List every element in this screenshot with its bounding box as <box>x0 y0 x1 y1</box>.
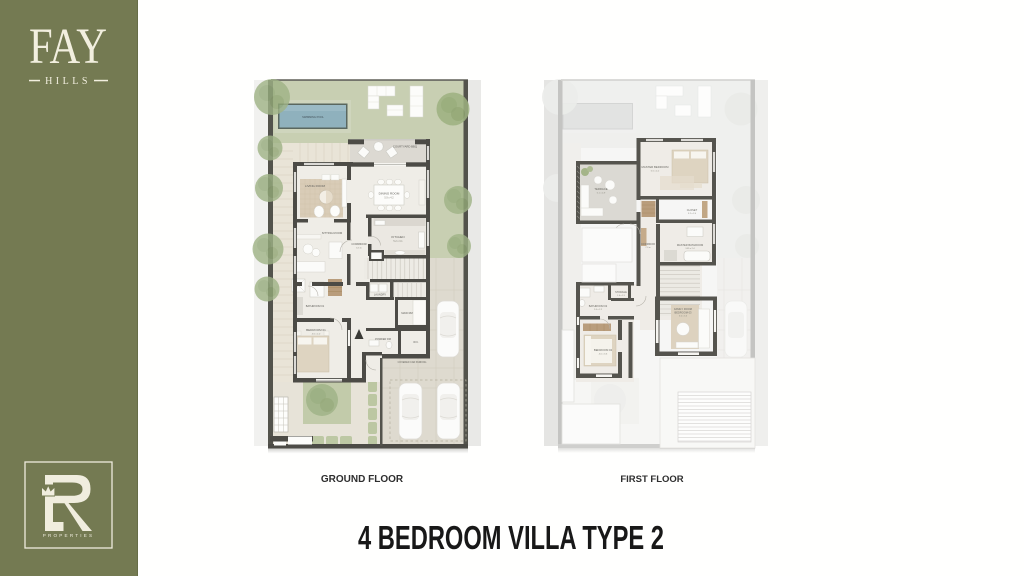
svg-text:4 BEDROOM VILLA TYPE 2: 4 BEDROOM VILLA TYPE 2 <box>358 520 664 557</box>
svg-text:SWIMMING POOL: SWIMMING POOL <box>302 115 324 119</box>
svg-text:BATHROOM 01: BATHROOM 01 <box>306 304 325 308</box>
svg-text:SITTING ROOM: SITTING ROOM <box>322 231 343 235</box>
svg-text:LAUNDRY: LAUNDRY <box>374 293 387 297</box>
svg-text:DINING ROOM: DINING ROOM <box>379 192 400 196</box>
svg-text:3.6 x 3.3: 3.6 x 3.3 <box>679 316 688 318</box>
svg-text:COURTYARD BBQ: COURTYARD BBQ <box>393 145 418 149</box>
svg-text:COVERED CAR PARKING: COVERED CAR PARKING <box>398 361 427 364</box>
svg-text:HILLS: HILLS <box>45 76 91 87</box>
svg-text:CLOSET: CLOSET <box>687 208 698 212</box>
svg-text:4.0 x 3.6: 4.0 x 3.6 <box>599 353 608 355</box>
svg-text:2.6 x 2.2: 2.6 x 2.2 <box>594 309 603 311</box>
svg-text:5.1 x 4.9: 5.1 x 4.9 <box>597 192 606 194</box>
svg-text:LIVING ROOM: LIVING ROOM <box>305 184 326 188</box>
svg-text:PROPERTIES: PROPERTIES <box>43 533 95 538</box>
svg-text:MASTER BEDROOM: MASTER BEDROOM <box>642 165 670 169</box>
svg-text:FAMILY ROOM: FAMILY ROOM <box>674 307 692 311</box>
svg-text:TERRACE: TERRACE <box>594 187 607 191</box>
svg-text:1.6 x 1.5: 1.6 x 1.5 <box>617 295 626 297</box>
svg-text:CORRIDOR: CORRIDOR <box>641 242 655 246</box>
svg-text:6.5 m: 6.5 m <box>356 248 362 250</box>
svg-text:7.0 m: 7.0 m <box>645 247 650 249</box>
svg-text:5.5 x 4.2: 5.5 x 4.2 <box>651 170 660 172</box>
svg-text:BATHROOM 02: BATHROOM 02 <box>589 304 608 308</box>
svg-text:4.6 x 4.0: 4.6 x 4.0 <box>312 334 321 336</box>
svg-text:STORAGE: STORAGE <box>615 291 627 294</box>
svg-text:5.9 x 4.2: 5.9 x 4.2 <box>384 197 394 200</box>
svg-text:BEDROOM 01: BEDROOM 01 <box>306 328 326 332</box>
svg-text:POWDER RM: POWDER RM <box>375 338 391 341</box>
svg-text:W.C.: W.C. <box>413 341 419 344</box>
svg-text:FAY: FAY <box>29 19 107 75</box>
svg-text:5.2 x 3.1: 5.2 x 3.1 <box>393 240 403 243</box>
svg-text:BEDROOM 03: BEDROOM 03 <box>674 310 692 314</box>
svg-text:MAID RM: MAID RM <box>401 311 412 315</box>
svg-text:KITCHEN: KITCHEN <box>391 235 404 239</box>
svg-text:CORRIDOR: CORRIDOR <box>351 242 366 246</box>
svg-text:MASTER BATHROOM: MASTER BATHROOM <box>677 243 703 247</box>
svg-text:3.2 x 2.0: 3.2 x 2.0 <box>688 213 697 215</box>
svg-text:3.85 x 2.4: 3.85 x 2.4 <box>685 248 695 250</box>
svg-text:BEDROOM 02: BEDROOM 02 <box>594 348 613 352</box>
